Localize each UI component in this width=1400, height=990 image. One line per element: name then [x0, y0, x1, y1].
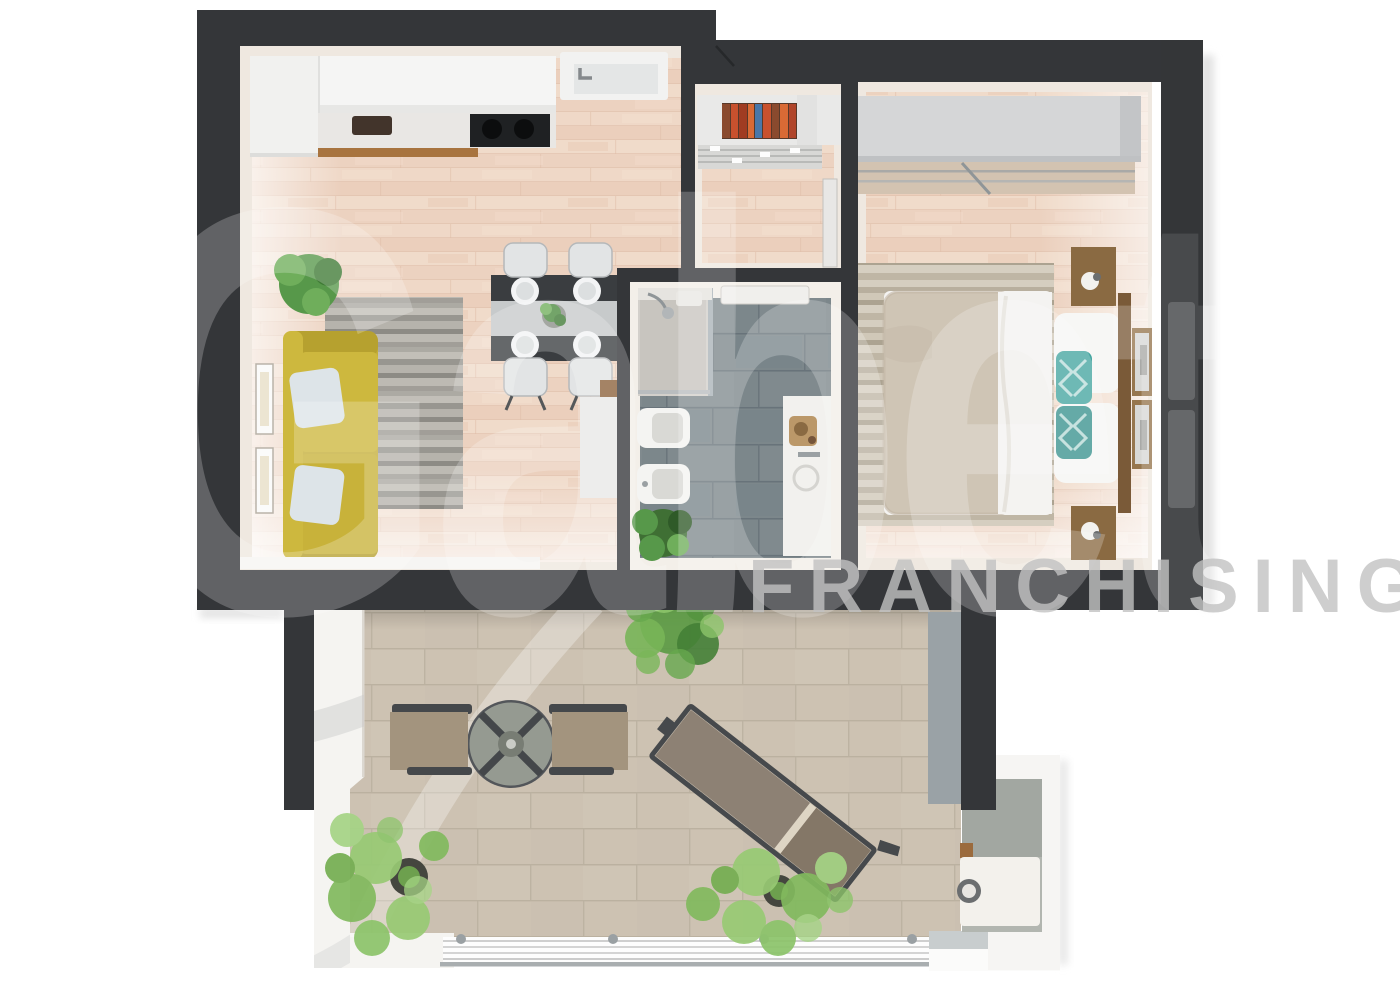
- svg-text:Gabetti: Gabetti: [120, 87, 1400, 735]
- svg-text:FRANCHISING: FRANCHISING: [748, 544, 1400, 629]
